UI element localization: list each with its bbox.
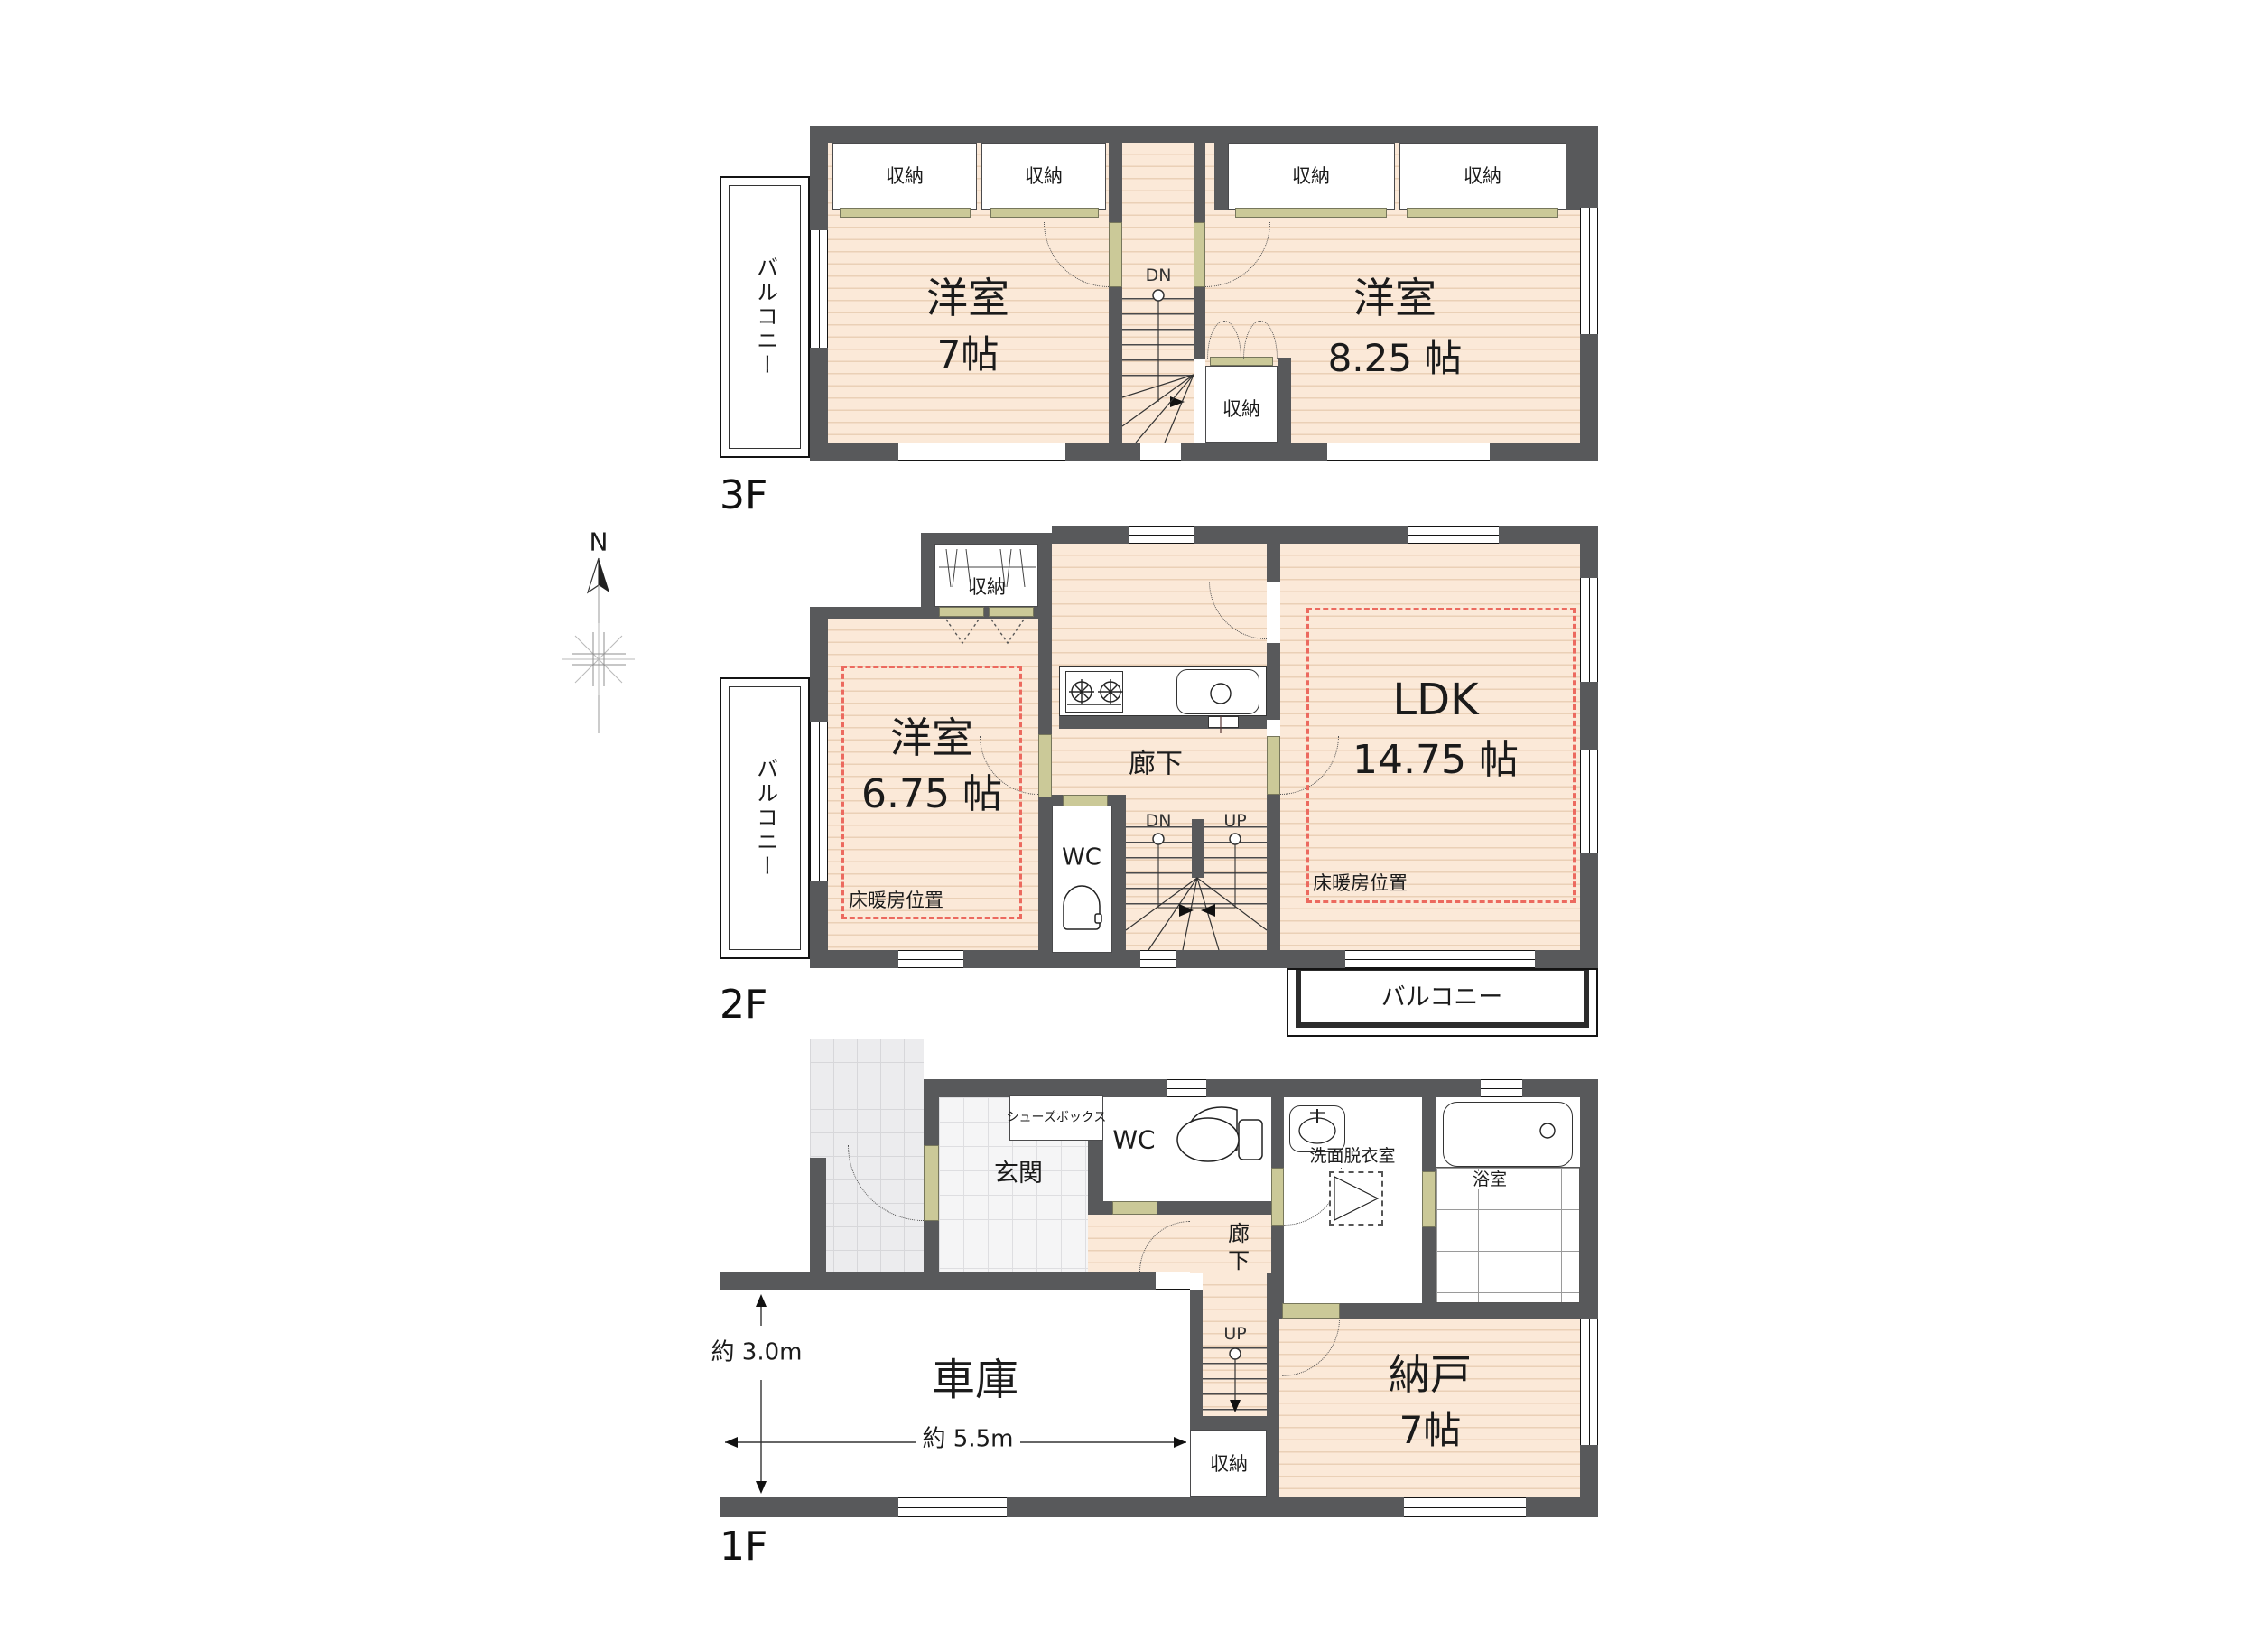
entrance-label: 玄関: [994, 1161, 1043, 1187]
window: [1580, 208, 1598, 334]
balcony-label: バルコニー: [753, 758, 776, 880]
closet-door: [989, 607, 1034, 617]
wall-segment: [1038, 797, 1052, 968]
floor-label-1f: 1F: [720, 1526, 767, 1568]
compass-icon: [562, 558, 635, 733]
floor-heating-label: 床暖房位置: [849, 890, 943, 910]
wall-segment: [1190, 1290, 1203, 1430]
closet-door: [990, 208, 1099, 218]
window: [810, 722, 828, 881]
dim-width-label: 約 5.5m: [917, 1425, 1019, 1453]
closet-label: 収納: [886, 166, 924, 186]
closet-label: 収納: [1292, 166, 1330, 186]
window: [1129, 526, 1194, 544]
wall-segment: [1190, 1416, 1267, 1430]
window: [1580, 750, 1598, 853]
room-name: 洋室: [926, 276, 1009, 320]
window: [1167, 1079, 1206, 1097]
window: [1408, 526, 1499, 544]
sink-tap: [1208, 716, 1239, 728]
bathtub-icon: [1443, 1102, 1573, 1167]
wall-segment: [1192, 819, 1204, 878]
balcony-label: バルコニー: [753, 256, 776, 378]
stair-up-label: UP: [1223, 813, 1246, 831]
closet-label: 収納: [1464, 166, 1501, 186]
wall-segment: [1038, 533, 1052, 736]
hallway-label: 廊下: [1224, 1222, 1247, 1276]
wall-segment: [921, 533, 934, 619]
window: [1580, 1319, 1598, 1445]
stair-treads: [1203, 1347, 1267, 1416]
shoe-box-label: シューズボックス: [1007, 1112, 1107, 1125]
room-door: [1194, 222, 1205, 287]
ldk-size: 14.75 帖: [1352, 740, 1519, 781]
window: [898, 443, 1065, 461]
ldk-name: LDK: [1392, 677, 1478, 722]
room-size: 6.75 帖: [861, 774, 1002, 815]
dim-depth-label: 約 3.0m: [708, 1338, 806, 1366]
closet-label: 収納: [1210, 1454, 1248, 1474]
stair-down-label: DN: [1146, 813, 1172, 831]
wall-segment: [924, 1079, 939, 1145]
stove-icon: [1065, 671, 1123, 713]
washroom-label: 洗面脱衣室: [1309, 1148, 1395, 1166]
storage-room-door: [1282, 1303, 1340, 1319]
closet-door: [1407, 208, 1558, 218]
sink-icon: [1176, 669, 1259, 714]
window: [898, 1497, 1007, 1517]
wall-segment: [1214, 143, 1228, 210]
wc-door: [1063, 795, 1108, 806]
closet-label: 収納: [968, 577, 1006, 597]
storage-room-size: 7帖: [1399, 1411, 1462, 1450]
room-name: 洋室: [1353, 276, 1436, 320]
closet-label: 収納: [1025, 166, 1063, 186]
stair-up-label: UP: [1223, 1326, 1246, 1344]
bathroom-label: 浴室: [1470, 1171, 1510, 1189]
wall-segment: [1109, 143, 1122, 443]
room-door: [1109, 222, 1122, 287]
stair-treads: [1122, 298, 1194, 379]
wall-segment: [1267, 795, 1280, 968]
wc-room-2f: [1052, 806, 1112, 953]
garage-label: 車庫: [932, 1357, 1018, 1403]
compass-north-label: N: [590, 528, 609, 555]
window: [1140, 950, 1176, 968]
wall-segment: [1271, 1097, 1284, 1168]
washing-machine-icon: [1329, 1171, 1383, 1226]
room-door: [1038, 734, 1052, 797]
wall-segment: [921, 533, 1052, 544]
wc-label: WC: [1112, 1126, 1155, 1152]
hallway-label: 廊下: [1129, 750, 1183, 778]
window: [810, 230, 828, 348]
floor-label-3f: 3F: [720, 475, 767, 517]
wall-segment: [810, 1158, 826, 1272]
window: [1580, 578, 1598, 682]
closet-label: 収納: [1222, 399, 1260, 419]
wall-segment: [1566, 143, 1580, 210]
window: [1140, 443, 1181, 461]
wall-segment: [924, 1221, 939, 1272]
toilet-icon-1f: [1177, 1107, 1262, 1161]
washroom-door: [1271, 1168, 1284, 1226]
window: [1481, 1079, 1522, 1097]
closet-door: [840, 208, 971, 218]
wc-label: WC: [1062, 845, 1101, 870]
wall-segment: [1278, 358, 1291, 443]
room-size: 8.25 帖: [1328, 339, 1463, 378]
corridor-door: [1156, 1272, 1190, 1290]
stair-down-label: DN: [1146, 267, 1172, 285]
wc-door: [1112, 1201, 1157, 1215]
room-door: [1267, 736, 1280, 795]
wall-segment: [1267, 1273, 1279, 1497]
window: [1345, 950, 1535, 968]
closet-door: [939, 607, 984, 617]
floor-plan-canvas: バルコニー 洋室 7帖 洋室 8.25 帖 収納 収納 収納 収納 収納 DN …: [0, 0, 2268, 1631]
wall-segment: [810, 126, 1598, 143]
floor-label-2f: 2F: [720, 984, 767, 1026]
window: [1404, 1497, 1526, 1517]
wall-segment: [1580, 1079, 1598, 1517]
bathroom-door: [1422, 1171, 1436, 1227]
balcony-label: バルコニー: [1374, 985, 1510, 1011]
wall-segment: [1267, 544, 1280, 582]
window: [1327, 443, 1490, 461]
closet-door: [1235, 208, 1387, 218]
wall-segment: [1267, 643, 1280, 720]
wall-segment: [720, 1272, 1190, 1290]
wall-segment: [1112, 806, 1126, 968]
stairwell-3f: [1122, 143, 1194, 443]
entrance-door: [924, 1145, 939, 1221]
room-size: 7帖: [937, 335, 999, 375]
floor-heating-label: 床暖房位置: [1313, 873, 1408, 893]
storage-room-name: 納戸: [1389, 1353, 1472, 1396]
room-name: 洋室: [890, 716, 973, 760]
window: [898, 950, 963, 968]
